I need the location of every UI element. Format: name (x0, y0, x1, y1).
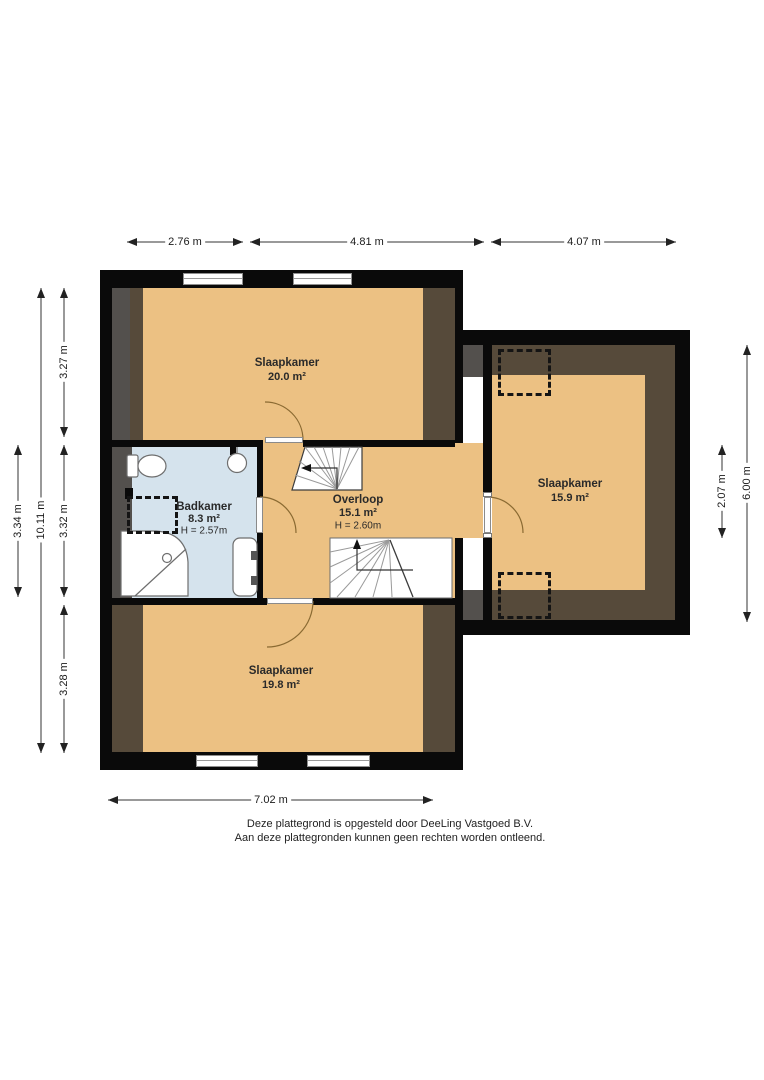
window (293, 273, 352, 285)
sloped-strip (423, 605, 455, 752)
room-label-top-bedroom: Slaapkamer (255, 357, 320, 369)
room-area-top-bedroom: 20.0 m² (268, 371, 306, 383)
wall (675, 330, 690, 635)
door-leaf-bottom-bedroom (267, 598, 313, 604)
wall (257, 440, 263, 497)
room-label-landing: Overloop (333, 494, 383, 506)
wall (112, 598, 267, 605)
dim-label-top-3: 4.07 m (564, 236, 604, 248)
disclaimer-line-1: Deze plattegrond is opgesteld door DeeLi… (235, 818, 546, 832)
room-area-bathroom: 8.3 m² (188, 513, 220, 525)
window (307, 755, 370, 767)
sloped-strip (130, 288, 143, 440)
sloped-strip (463, 590, 483, 620)
skylight-right-room-top (498, 349, 551, 396)
room-label-bottom-bedroom: Slaapkamer (249, 665, 314, 677)
skylight-bathroom (127, 496, 178, 534)
room-height-landing: H = 2.60m (335, 521, 381, 532)
dim-label-top-2: 4.81 m (347, 236, 387, 248)
wall (483, 345, 492, 495)
door-stop (483, 533, 492, 538)
wall-stub (230, 447, 236, 455)
dim-label-left-bottom: 3.28 m (58, 659, 70, 699)
dim-label-left-mid: 3.32 m (58, 501, 70, 541)
wall (303, 440, 455, 447)
room-area-bottom-bedroom: 19.8 m² (262, 679, 300, 691)
room-height-bathroom: H = 2.57m (181, 526, 227, 537)
wall (455, 620, 690, 635)
disclaimer-line-2: Aan deze plattegronden kunnen geen recht… (235, 832, 546, 846)
room-label-right-bedroom: Slaapkamer (538, 478, 603, 490)
dim-label-left-top: 3.27 m (58, 342, 70, 382)
dim-label-right-outer: 6.00 m (741, 463, 753, 503)
room-label-bathroom: Badkamer (176, 501, 232, 513)
dim-label-left-total: 10.11 m (35, 498, 47, 543)
sloped-strip (112, 288, 130, 440)
dim-label-bottom: 7.02 m (251, 794, 291, 806)
void-strip (463, 538, 483, 590)
sloped-strip (423, 288, 455, 440)
disclaimer: Deze plattegrond is opgesteld door DeeLi… (235, 818, 546, 845)
room-area-landing: 15.1 m² (339, 507, 377, 519)
wall (100, 752, 463, 770)
wall (100, 270, 463, 288)
wall (483, 533, 492, 620)
door-leaf-right-bedroom (484, 497, 491, 533)
skylight-right-room-bottom (498, 572, 551, 619)
wall (455, 288, 463, 443)
floor-plan-canvas: 2.76 m 4.81 m 4.07 m 7.02 m 3.34 m 10.11… (0, 0, 764, 1080)
dim-label-left-outer: 3.34 m (12, 501, 24, 541)
wall (455, 330, 690, 345)
room-area-right-bedroom: 15.9 m² (551, 492, 589, 504)
wall (313, 598, 455, 605)
dim-label-top-1: 2.76 m (165, 236, 205, 248)
window (196, 755, 258, 767)
wall (257, 533, 263, 598)
wall (100, 270, 112, 770)
door-leaf-bathroom (256, 497, 263, 533)
landing-passage-floor (455, 443, 483, 538)
door-leaf-top-bedroom (265, 437, 303, 443)
wall (455, 538, 463, 752)
dim-label-right-inner: 2.07 m (716, 471, 728, 511)
void-strip (463, 377, 483, 443)
sloped-strip (463, 345, 483, 377)
window (183, 273, 243, 285)
sloped-strip (112, 605, 143, 752)
wall (112, 440, 263, 447)
